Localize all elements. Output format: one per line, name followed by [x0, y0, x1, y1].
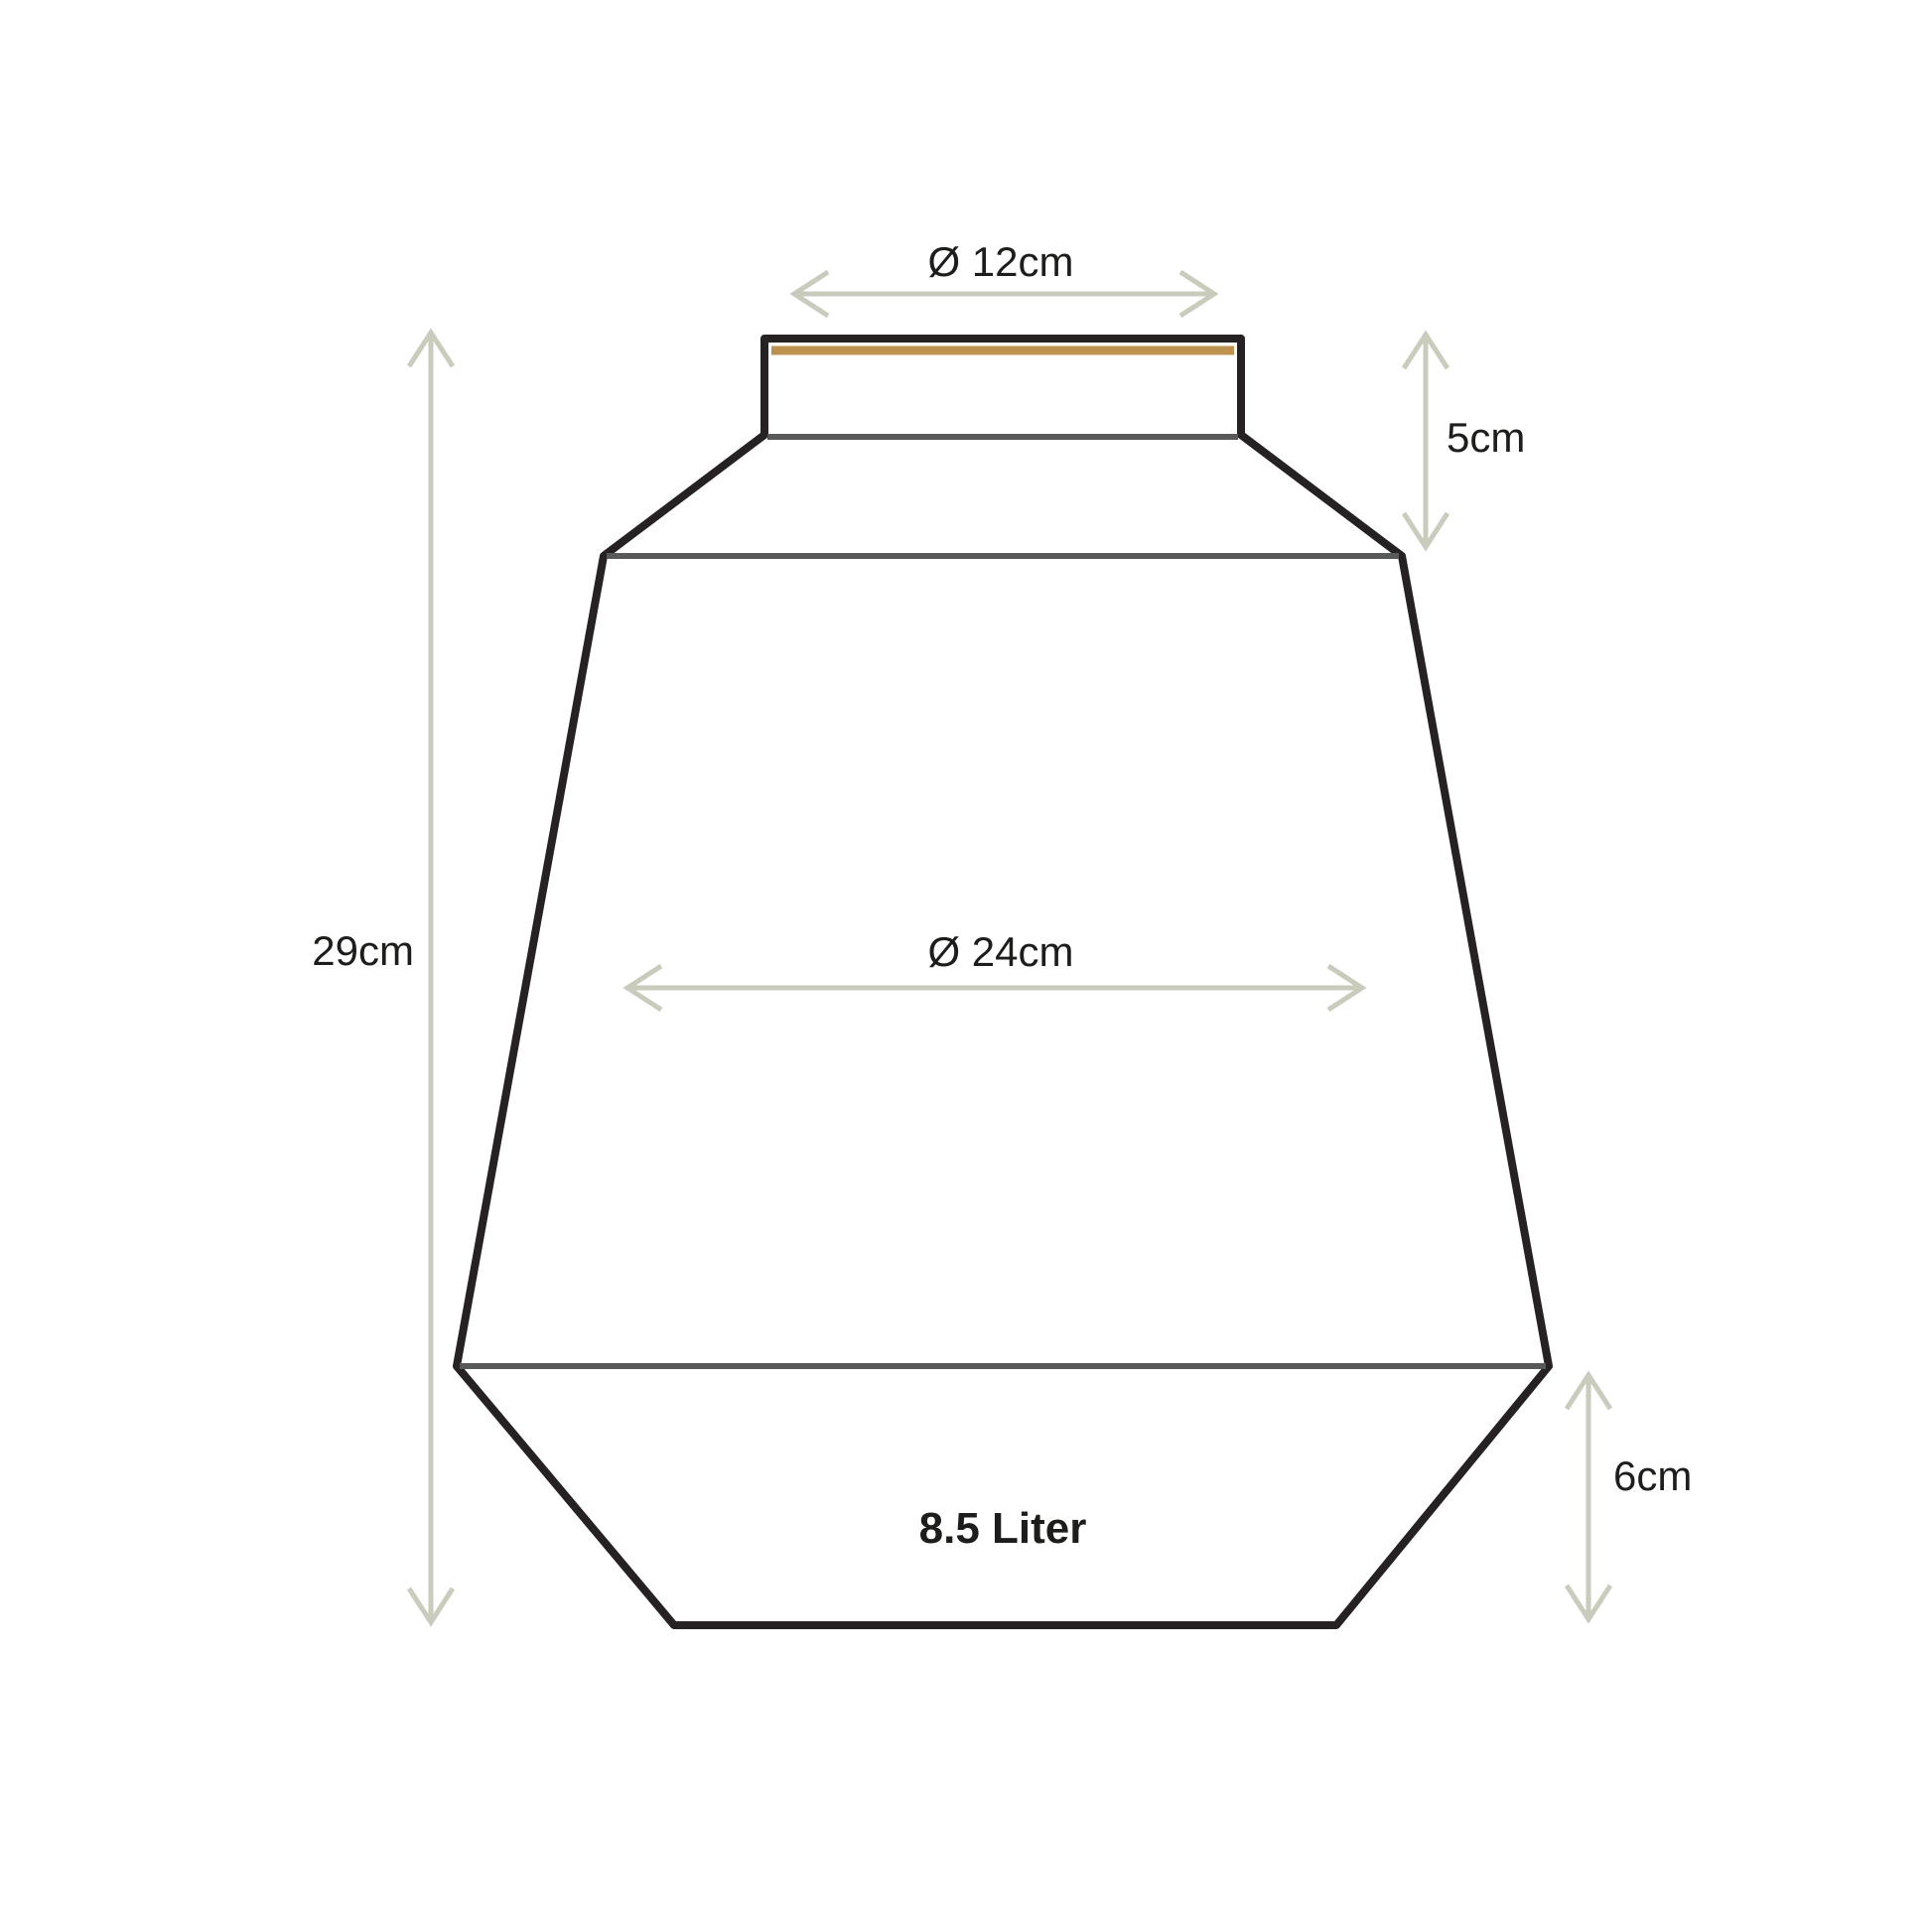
vase-shape-group — [457, 339, 1549, 1625]
dim-arrow-total-height — [409, 333, 453, 1622]
label-base-height: 6cm — [1613, 1452, 1692, 1499]
vase-outline — [457, 339, 1549, 1625]
dim-arrow-base-height — [1567, 1375, 1610, 1619]
label-neck-height: 5cm — [1447, 414, 1525, 461]
label-total-height: 29cm — [312, 927, 414, 974]
label-top-diameter: Ø 12cm — [927, 238, 1073, 285]
dim-arrow-neck-height — [1404, 335, 1448, 547]
label-capacity: 8.5 Liter — [919, 1504, 1087, 1553]
vase-dimension-diagram: Ø 12cm 5cm 29cm Ø 24cm 6cm 8.5 Liter — [0, 0, 1932, 1932]
label-body-diameter: Ø 24cm — [927, 928, 1073, 975]
diagram-canvas: Ø 12cm 5cm 29cm Ø 24cm 6cm 8.5 Liter — [0, 0, 1932, 1932]
